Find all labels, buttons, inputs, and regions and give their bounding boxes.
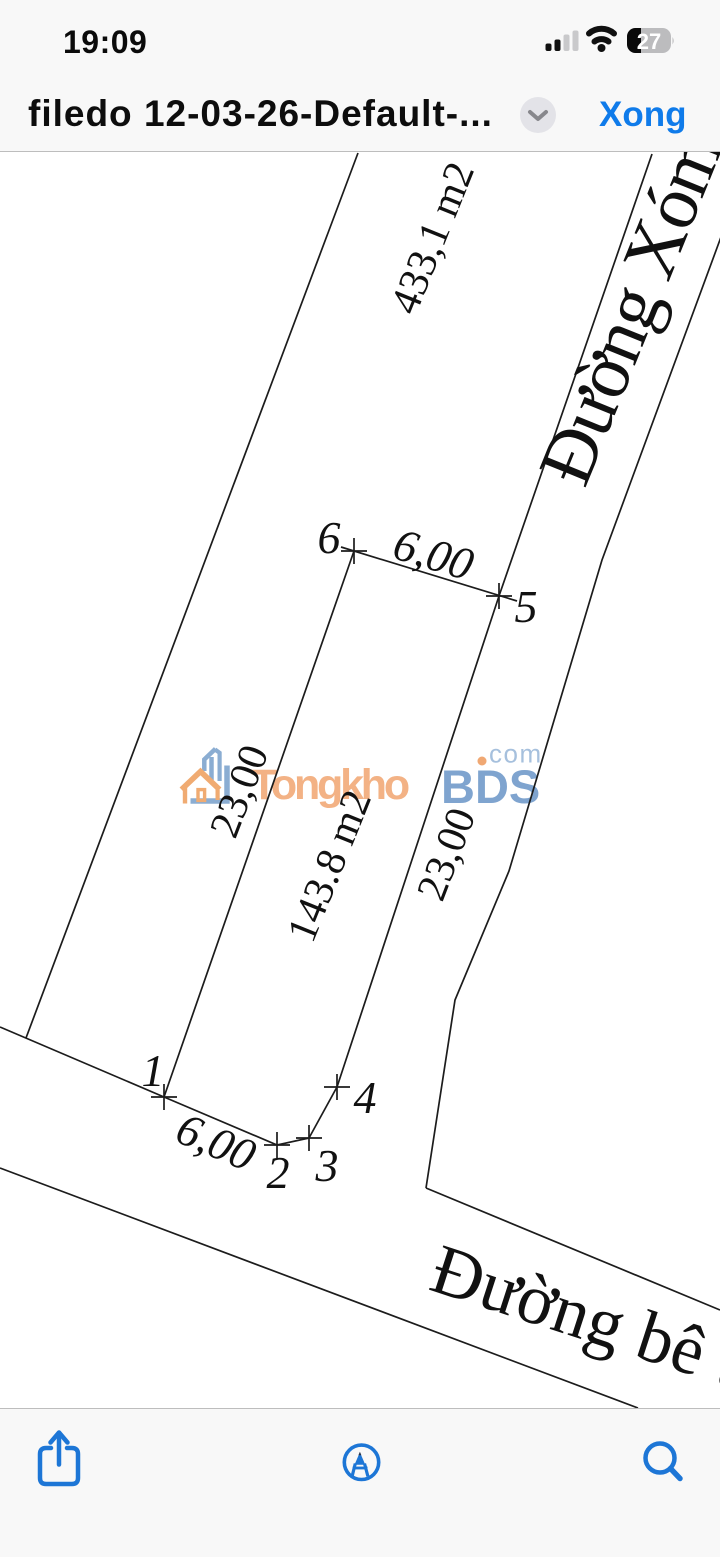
- svg-text:23,00: 23,00: [408, 802, 485, 907]
- svg-text:5: 5: [515, 581, 538, 632]
- svg-text:6,00: 6,00: [388, 518, 480, 590]
- svg-text:Đường Xóm: Đường Xóm: [523, 152, 720, 496]
- svg-text:433,1 m2: 433,1 m2: [382, 156, 484, 320]
- svg-text:Đường bê tông: Đường bê tông: [422, 1230, 720, 1408]
- svg-text:6: 6: [318, 512, 341, 563]
- svg-text:4: 4: [354, 1072, 377, 1123]
- svg-text:com: com: [489, 739, 543, 769]
- svg-text:2: 2: [267, 1147, 290, 1198]
- svg-text:3: 3: [315, 1140, 339, 1191]
- svg-text:Tongkho: Tongkho: [251, 761, 409, 809]
- svg-text:27: 27: [637, 29, 661, 54]
- svg-text:1: 1: [142, 1045, 165, 1096]
- svg-text:6,00: 6,00: [169, 1103, 263, 1181]
